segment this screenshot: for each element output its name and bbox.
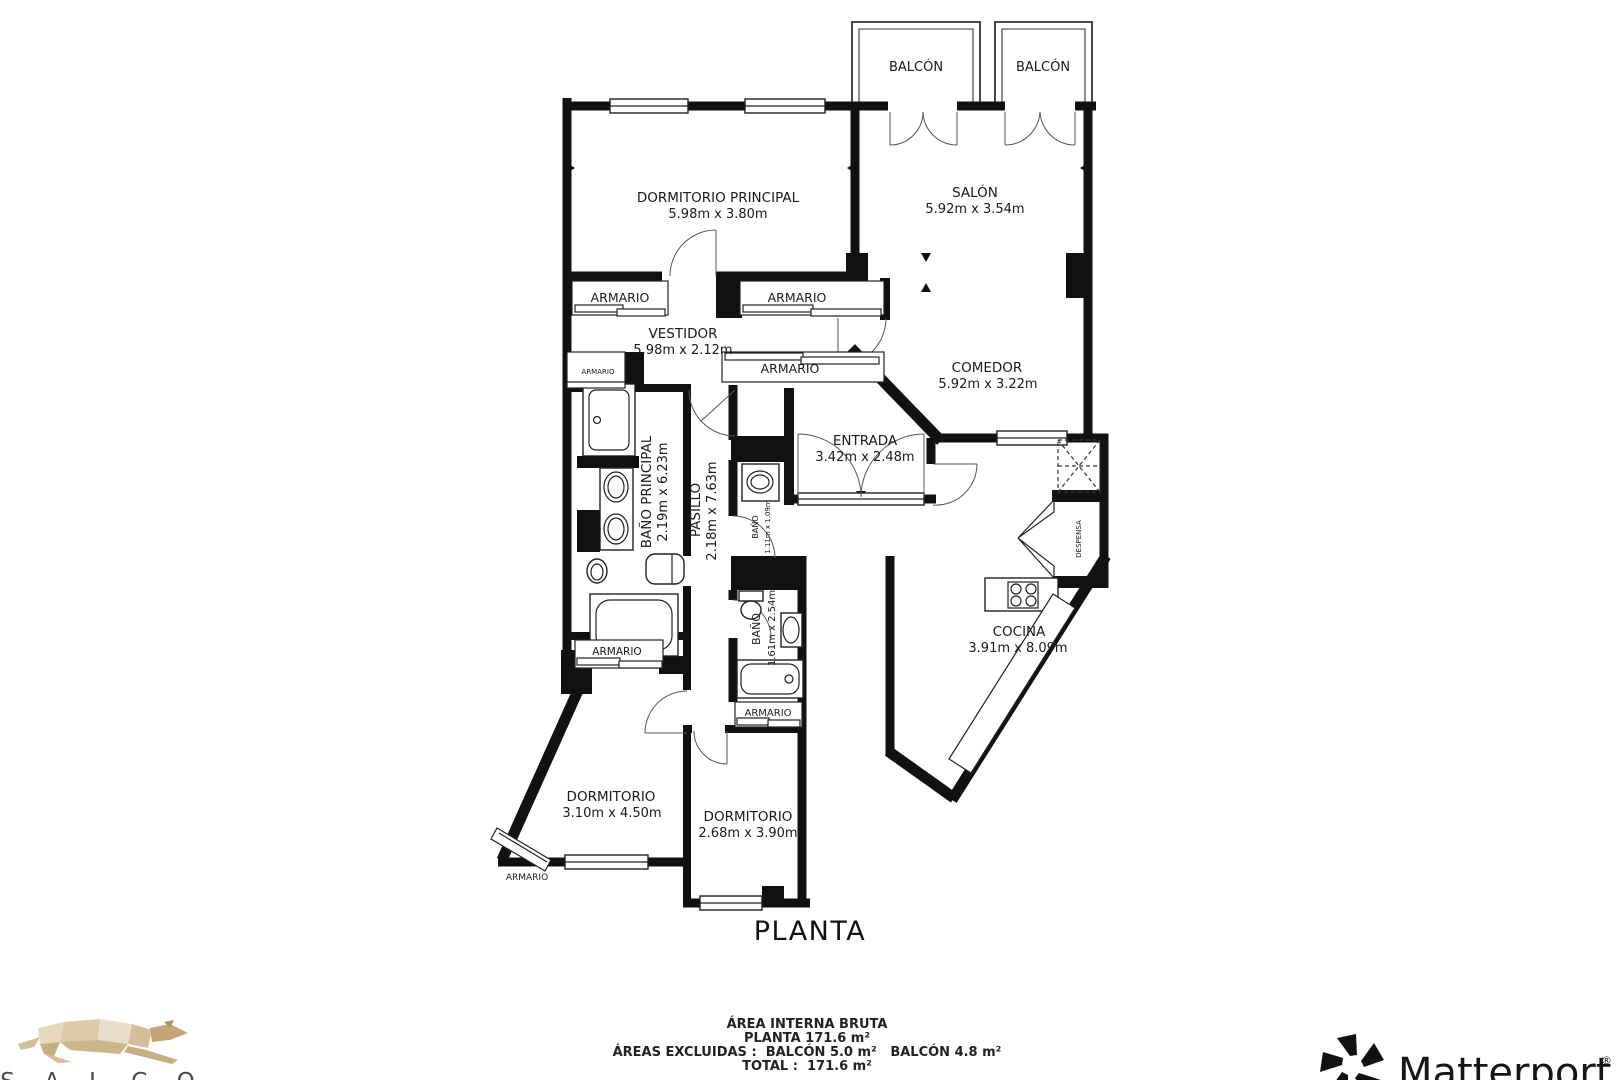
svg-text:3.42m x 2.48m: 3.42m x 2.48m	[815, 450, 914, 465]
balcony-left-doors	[890, 112, 957, 145]
svg-text:2.18m x 7.63m: 2.18m x 7.63m	[705, 461, 720, 560]
closet-vestidor-right: ARMARIO	[740, 281, 884, 316]
closet-vestidor-bottom: ARMARIO	[722, 352, 884, 382]
closet-label: ARMARIO	[582, 368, 615, 376]
area-line-1: ÁREA INTERNA BRUTA	[727, 1016, 888, 1032]
balcony-left-label: BALCÓN	[889, 59, 943, 75]
svg-text:2.19m x 6.23m: 2.19m x 6.23m	[656, 442, 671, 541]
svg-text:BAÑO PRINCIPAL: BAÑO PRINCIPAL	[638, 435, 655, 548]
svg-text:3.91m x 8.09m: 3.91m x 8.09m	[968, 641, 1067, 656]
svg-text:ENTRADA: ENTRADA	[833, 433, 898, 449]
kitchen-door	[933, 464, 977, 505]
room-label-dormitorio-izquierdo: DORMITORIO 3.10m x 4.50m	[562, 789, 661, 821]
agency-name: S A L C O	[0, 1069, 206, 1080]
closet-label: ARMARIO	[591, 290, 650, 305]
area-line-3: ÁREAS EXCLUIDAS : BALCÓN 5.0 m² BALCÓN 4…	[613, 1044, 1002, 1060]
room-label-salon: SALÓN 5.92m x 3.54m	[925, 183, 1024, 217]
svg-text:BAÑO: BAÑO	[750, 613, 763, 645]
svg-text:5.92m x 3.22m: 5.92m x 3.22m	[938, 377, 1037, 392]
plan-title: PLANTA	[754, 916, 866, 947]
double-sink-symbol	[600, 468, 633, 550]
svg-text:2.68m x 3.90m: 2.68m x 3.90m	[698, 826, 797, 841]
svg-text:COMEDOR: COMEDOR	[952, 360, 1023, 376]
area-line-4: TOTAL : 171.6 m²	[742, 1059, 872, 1074]
toilet-symbol-main	[587, 559, 607, 583]
sink-symbol-small-bath	[742, 464, 779, 501]
main-bedroom-door	[670, 230, 716, 276]
svg-text:VESTIDOR: VESTIDOR	[649, 326, 718, 342]
closet-label: ARMARIO	[506, 873, 548, 883]
appliance-symbol	[1058, 440, 1100, 492]
svg-text:1.61m x 2.54m: 1.61m x 2.54m	[767, 590, 778, 666]
balcony-left: BALCÓN	[852, 22, 980, 108]
closet-label: ARMARIO	[744, 708, 791, 719]
kitchen-counter	[949, 594, 1075, 773]
room-label-entrada: ENTRADA 3.42m x 2.48m	[815, 433, 914, 465]
pantry-bifold-doors	[1018, 500, 1054, 578]
svg-text:DORMITORIO: DORMITORIO	[704, 809, 793, 825]
agency-logo: S A L C O	[0, 1019, 206, 1080]
svg-text:5.98m x 2.12m: 5.98m x 2.12m	[633, 343, 732, 358]
matterport-pinwheel-icon	[1320, 1034, 1384, 1080]
provider-logo: Matterport ®	[1320, 1034, 1612, 1080]
balcony-right-doors	[1005, 112, 1075, 145]
hallway-door	[689, 390, 735, 436]
room-label-comedor: COMEDOR 5.92m x 3.22m	[938, 360, 1037, 392]
svg-text:DORMITORIO PRINCIPAL: DORMITORIO PRINCIPAL	[637, 190, 800, 206]
main-bath-pocket-door	[646, 554, 684, 584]
room-label-vestidor: VESTIDOR 5.98m x 2.12m	[633, 326, 732, 358]
greyhound-logo-icon	[18, 1019, 188, 1064]
balcony-right-label: BALCÓN	[1016, 59, 1070, 75]
svg-text:PASILLO: PASILLO	[688, 483, 704, 537]
closet-tiny: ARMARIO	[567, 352, 625, 388]
svg-text:1.11m x 1.09m: 1.11m x 1.09m	[764, 500, 772, 554]
area-summary: ÁREA INTERNA BRUTA PLANTA 171.6 m² ÁREAS…	[613, 1016, 1002, 1074]
closet-label: ARMARIO	[768, 290, 827, 305]
svg-text:3.10m x 4.50m: 3.10m x 4.50m	[562, 806, 661, 821]
room-label-despensa: DESPENSA	[1075, 520, 1083, 558]
closet-label: ARMARIO	[761, 361, 820, 376]
svg-text:COCINA: COCINA	[993, 624, 1047, 640]
svg-text:5.98m x 3.80m: 5.98m x 3.80m	[668, 207, 767, 222]
room-label-dormitorio-central: DORMITORIO 2.68m x 3.90m	[698, 809, 797, 841]
closet-label: ARMARIO	[592, 646, 641, 658]
registered-mark: ®	[1601, 1054, 1612, 1067]
left-bedroom-door	[645, 691, 687, 733]
balcony-right: BALCÓN	[995, 22, 1092, 108]
closet-under-main-bath: ARMARIO	[575, 640, 663, 668]
room-label-pasillo: PASILLO 2.18m x 7.63m	[688, 461, 720, 560]
closet-vestidor-left: ARMARIO	[572, 281, 668, 316]
room-label-bano-principal: BAÑO PRINCIPAL 2.19m x 6.23m	[638, 435, 671, 548]
floor-plan-page: BALCÓN BALCÓN	[0, 0, 1620, 1080]
sink-symbol-bath	[781, 613, 802, 647]
svg-text:DORMITORIO: DORMITORIO	[567, 789, 656, 805]
svg-text:DESPENSA: DESPENSA	[1075, 520, 1083, 558]
shower-symbol	[583, 384, 635, 456]
room-label-dormitorio-principal: DORMITORIO PRINCIPAL 5.98m x 3.80m	[637, 190, 800, 222]
closet-under-bath: ARMARIO	[735, 702, 802, 727]
svg-text:5.92m x 3.54m: 5.92m x 3.54m	[925, 202, 1024, 217]
svg-text:SALÓN: SALÓN	[952, 183, 998, 201]
svg-text:BAÑO: BAÑO	[750, 515, 760, 538]
floor-plan-svg: BALCÓN BALCÓN	[0, 0, 1620, 1080]
provider-name: Matterport	[1398, 1050, 1611, 1080]
center-bedroom-door	[694, 731, 727, 764]
area-line-2: PLANTA 171.6 m²	[744, 1031, 870, 1046]
